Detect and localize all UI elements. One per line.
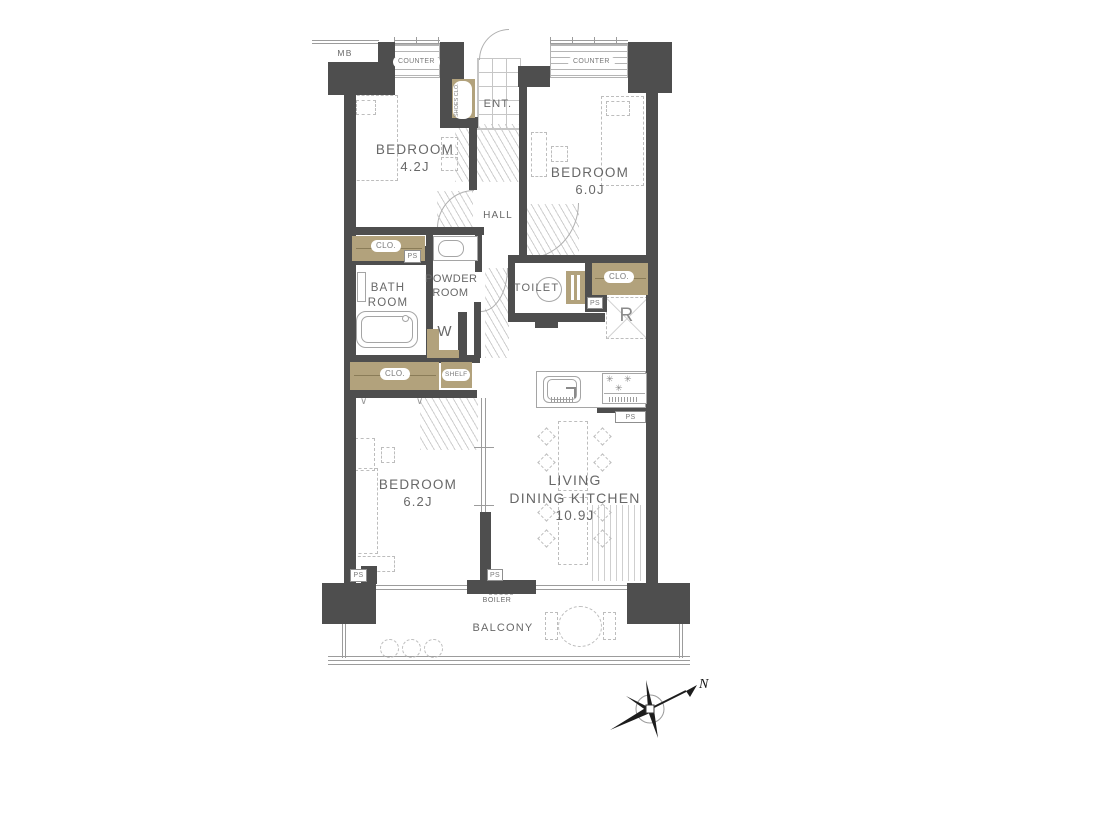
window-bottom-right xyxy=(536,585,627,590)
ps-shaft-label: PS xyxy=(487,569,503,581)
wall-segment xyxy=(628,42,672,93)
shoes-closet-label: SHOES CLO. xyxy=(453,81,472,119)
counter-left-ticks xyxy=(394,37,440,43)
stove-divider xyxy=(604,393,645,394)
toilet-label: TOILET xyxy=(509,281,564,295)
wall-segment xyxy=(322,583,376,624)
wall-segment xyxy=(535,313,558,328)
ps-shaft-label: PS xyxy=(350,569,367,582)
washer-label: W xyxy=(432,322,458,342)
burner-icon: ✳ xyxy=(606,375,614,384)
furniture-outline xyxy=(355,438,375,471)
bedroom1-label: BEDROOM4.2J xyxy=(365,141,465,175)
wall-segment xyxy=(440,42,464,80)
bedroom2-label: BEDROOM6.0J xyxy=(540,164,640,198)
toilet-tank-detail xyxy=(571,275,574,300)
burner-icon: ✳ xyxy=(624,375,632,384)
entrance-label: ENT. xyxy=(477,97,519,111)
mb-top-line xyxy=(312,40,379,44)
pillow-outline xyxy=(356,100,376,115)
ps-shaft-label: PS xyxy=(587,297,603,309)
wall-segment xyxy=(378,42,395,95)
sink-drainer xyxy=(551,397,575,402)
sliding-door-mark: ∨ xyxy=(360,397,367,407)
balcony-railing xyxy=(328,656,690,665)
counter-right-label: COUNTER xyxy=(568,56,615,68)
compass-rose: N xyxy=(602,668,717,753)
burner-icon: ✳ xyxy=(615,384,623,393)
bedroom3-door-hatch xyxy=(420,398,478,450)
wall-segment xyxy=(585,255,648,263)
chair-outline xyxy=(593,427,611,445)
wall-segment xyxy=(519,87,527,262)
hall-label: HALL xyxy=(477,209,519,222)
window-bottom-left xyxy=(376,585,467,590)
wall-segment xyxy=(467,580,536,594)
wall-segment xyxy=(469,120,477,190)
wall-segment xyxy=(344,92,356,584)
planter-outline xyxy=(424,639,443,658)
counter-left-label: COUNTER xyxy=(393,56,440,68)
chair-outline xyxy=(537,453,555,471)
boiler-label: BOILER xyxy=(473,596,521,605)
furniture-outline xyxy=(551,146,568,162)
wall-segment xyxy=(458,312,467,357)
closet-3-label: CLO. xyxy=(380,368,410,380)
entrance-door-arc xyxy=(479,29,509,60)
refrigerator-label: R xyxy=(615,304,639,329)
chair-outline xyxy=(537,427,555,445)
balcony-label: BALCONY xyxy=(463,621,543,635)
planter-outline xyxy=(402,639,421,658)
ps-shaft-label: PS xyxy=(404,250,421,263)
bedroom3-label: BEDROOM6.2J xyxy=(368,476,468,510)
bath-drain xyxy=(402,315,409,322)
floor-plan: ✳ ✳ ✳ MB COUNTER COUNTER SHOES CLO. ENT.… xyxy=(0,0,1100,825)
closet-2-label: CLO. xyxy=(604,271,634,283)
wall-segment xyxy=(328,62,380,95)
washer-pan xyxy=(427,350,459,358)
stove-grill xyxy=(609,397,639,402)
wall-segment xyxy=(518,66,550,87)
partition-tick xyxy=(474,447,494,448)
powder-label: POWDERROOM xyxy=(425,272,476,301)
balcony-chair-outline xyxy=(603,612,616,640)
counter-right-ticks xyxy=(550,37,628,43)
bath-label: BATHROOM xyxy=(352,281,424,311)
mb-label: MB xyxy=(330,48,360,59)
wall-segment xyxy=(344,227,484,235)
ldk-label: LIVINGDINING KITCHEN10.9J xyxy=(490,471,660,525)
balcony-right-edge xyxy=(679,624,683,658)
planter-outline xyxy=(380,639,399,658)
furniture-outline xyxy=(381,447,395,463)
pillow-outline xyxy=(606,101,630,116)
chair-outline xyxy=(537,529,555,547)
balcony-chair-outline xyxy=(545,612,558,640)
entrance-tile-floor xyxy=(477,58,521,130)
wall-segment xyxy=(474,302,481,358)
bedroom3-ldk-partition xyxy=(481,398,486,512)
balcony-table-outline xyxy=(558,606,602,647)
powder-sink xyxy=(438,240,464,257)
closet-1-label: CLO. xyxy=(371,240,401,252)
balcony-left-edge xyxy=(342,624,346,658)
chair-outline xyxy=(593,453,611,471)
toilet-tank xyxy=(566,271,585,304)
shelf-label: SHELF xyxy=(442,369,470,381)
toilet-tank-detail xyxy=(577,275,580,300)
ps-shaft-label: PS xyxy=(615,411,646,423)
compass-north-label: N xyxy=(698,677,709,692)
wall-segment xyxy=(627,583,690,624)
sliding-door-mark: ∨ xyxy=(416,397,423,407)
